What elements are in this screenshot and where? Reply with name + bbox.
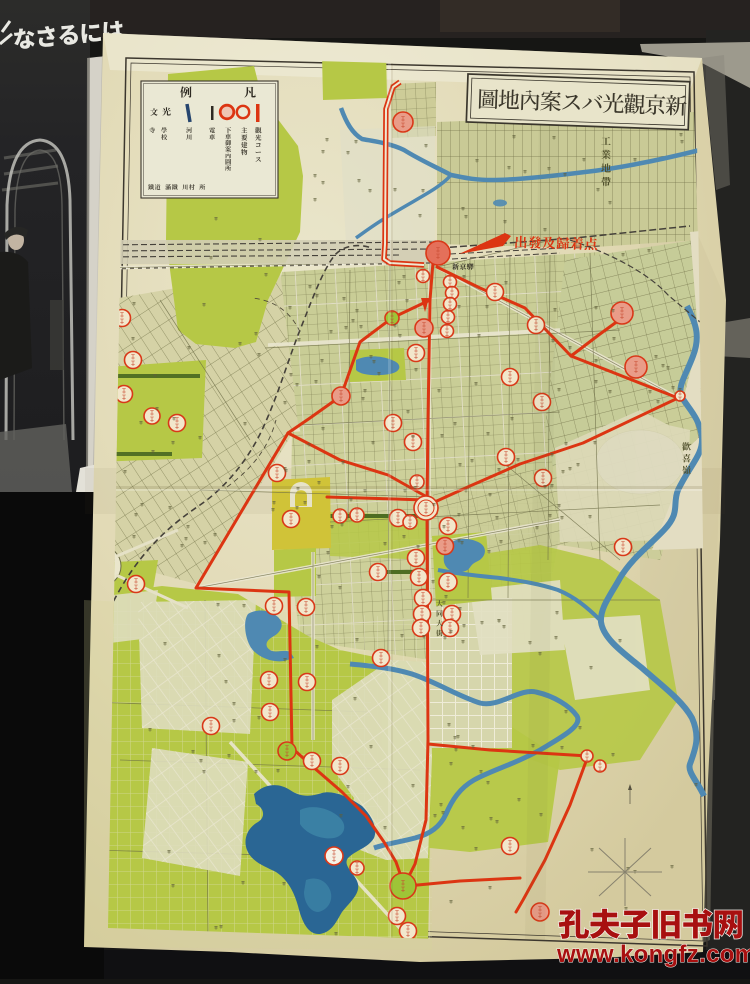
- svg-text:www.kongfz.com: www.kongfz.com: [556, 941, 750, 968]
